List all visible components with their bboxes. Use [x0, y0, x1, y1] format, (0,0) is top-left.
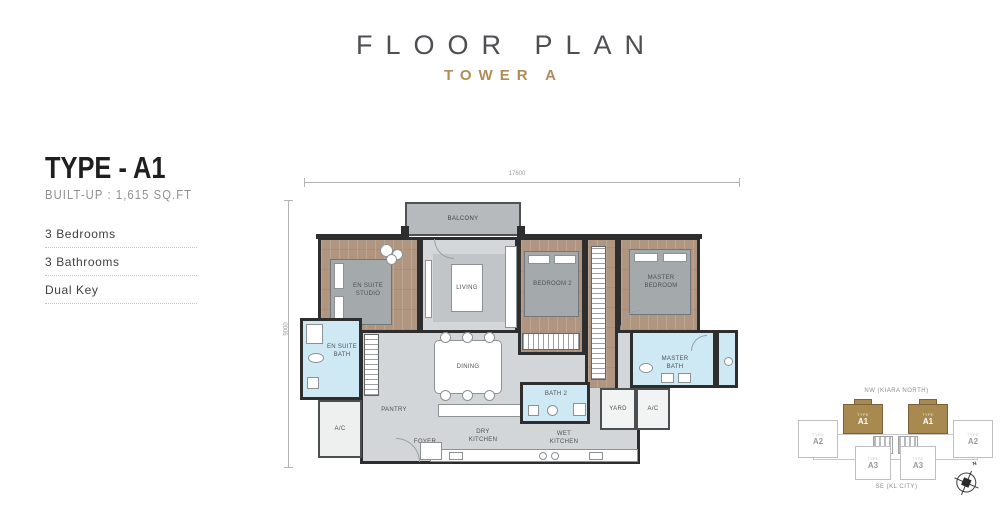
- sink: [307, 377, 319, 389]
- bed-bedroom-2: BEDROOM 2: [524, 251, 579, 317]
- room-label-ac: A/C: [648, 405, 659, 413]
- bed-en-suite-studio: EN SUITE STUDIO: [330, 259, 392, 325]
- sink: [449, 452, 463, 460]
- keyplan-unit-a3: TYPE A3: [855, 446, 891, 480]
- keyplan: NW (KIARA NORTH) TYPE A1 TYPE A1 TYPE A2…: [793, 388, 1000, 506]
- room-label-bath-2: BATH 2: [541, 390, 571, 398]
- keyplan-unit-label: A2: [968, 437, 978, 446]
- room-label-dining: DINING: [457, 363, 480, 371]
- wardrobe: [364, 334, 379, 396]
- wardrobe-column: [591, 246, 606, 380]
- dimension-tick: [284, 200, 293, 201]
- plant-icon: [386, 254, 397, 265]
- toilet: [308, 353, 324, 363]
- washer: [573, 403, 586, 416]
- tv-console: [425, 260, 432, 318]
- cooktop-burner: [539, 452, 547, 460]
- sink: [589, 452, 603, 460]
- room-balcony: BALCONY: [405, 202, 521, 236]
- room-en-suite-bath: EN SUITE BATH: [300, 318, 362, 400]
- room-bath-2: BATH 2: [520, 382, 590, 424]
- coffee-table: LIVING: [451, 264, 483, 312]
- chair: [440, 390, 451, 401]
- keyplan-unit-a1: TYPE A1: [908, 404, 948, 434]
- page-title: FLOOR PLAN: [0, 30, 1000, 61]
- room-living: LIVING: [420, 237, 518, 333]
- compass-north-letter: N: [972, 461, 978, 468]
- room-ac-ledge-left: A/C: [318, 400, 362, 458]
- feature-item: 3 Bedrooms: [45, 220, 197, 248]
- room-label-balcony: BALCONY: [448, 215, 479, 223]
- room-label-master-bedroom: MASTER BEDROOM: [641, 274, 681, 290]
- room-label-living: LIVING: [456, 284, 477, 292]
- chair: [440, 332, 451, 343]
- room-label-en-suite-studio: EN SUITE STUDIO: [345, 282, 391, 298]
- room-label-yard: YARD: [609, 405, 626, 413]
- built-up-text: BUILT-UP : 1,615 SQ.FT: [45, 188, 189, 202]
- keyplan-unit-label: A1: [923, 417, 933, 426]
- dimension-tick: [284, 467, 293, 468]
- keyplan-unit-a3: TYPE A3: [900, 446, 936, 480]
- shoe-cabinet: [420, 442, 442, 460]
- keyplan-unit-a1: TYPE A1: [843, 404, 883, 434]
- room-label-master-bath: MASTER BATH: [657, 355, 693, 371]
- cooktop-burner: [551, 452, 559, 460]
- keyplan-unit-label: A2: [813, 437, 823, 446]
- floor-plan: 17600 9000 BALCONY EN SUITE STUDIO: [288, 166, 746, 476]
- pillow: [663, 253, 687, 262]
- chair: [462, 332, 473, 343]
- shower-drain: [724, 357, 733, 366]
- keyplan-north-label: NW (KIARA NORTH): [793, 388, 1000, 394]
- wardrobe: [522, 333, 580, 350]
- room-label-bedroom-2: BEDROOM 2: [529, 280, 576, 288]
- toilet: [639, 363, 653, 373]
- dimension-width-label: 17600: [509, 171, 526, 177]
- room-label-ac: A/C: [335, 425, 346, 433]
- pillow: [528, 255, 550, 264]
- sink: [661, 373, 674, 383]
- header: FLOOR PLAN TOWER A: [0, 30, 1000, 84]
- chair: [462, 390, 473, 401]
- dimension-tick: [304, 178, 305, 187]
- dimension-depth-label: 9000: [284, 322, 290, 335]
- room-shower: [716, 330, 738, 388]
- room-label-wet-kitchen: WET KITCHEN: [544, 430, 584, 446]
- dimension-tick: [739, 178, 740, 187]
- unit-info: TYPE - A1 BUILT-UP : 1,615 SQ.FT 3 Bedro…: [45, 150, 205, 304]
- dimension-line-width: [304, 182, 740, 183]
- chair: [484, 390, 495, 401]
- pillow: [634, 253, 658, 262]
- pillow: [334, 263, 344, 289]
- sofa: [505, 246, 517, 328]
- keyplan-unit-label: A1: [858, 417, 868, 426]
- dining-table: DINING: [434, 340, 502, 394]
- sink: [528, 405, 539, 416]
- room-yard: YARD: [600, 388, 636, 430]
- page: FLOOR PLAN TOWER A TYPE - A1 BUILT-UP : …: [0, 0, 1000, 506]
- room-ac-ledge-right: A/C: [636, 388, 670, 430]
- chair: [484, 332, 495, 343]
- feature-item: 3 Bathrooms: [45, 248, 197, 276]
- kitchen-counter: [430, 449, 638, 462]
- keyplan-unit-a2: TYPE A2: [798, 420, 838, 458]
- feature-list: 3 Bedrooms 3 Bathrooms Dual Key: [45, 220, 205, 304]
- keyplan-unit-label: A3: [868, 461, 878, 470]
- keyplan-unit-label: A3: [913, 461, 923, 470]
- door-arc: [691, 335, 707, 351]
- room-label-pantry: PANTRY: [376, 406, 412, 414]
- bed-master: MASTER BEDROOM: [629, 249, 691, 315]
- compass-icon: N: [950, 461, 989, 500]
- page-subtitle: TOWER A: [0, 67, 1000, 84]
- toilet: [547, 405, 558, 416]
- keyplan-unit-a2: TYPE A2: [953, 420, 993, 458]
- feature-item: Dual Key: [45, 276, 197, 304]
- sink: [678, 373, 691, 383]
- unit-type-title: TYPE - A1: [45, 150, 176, 186]
- room-master-bath: MASTER BATH: [630, 330, 716, 388]
- shower: [306, 324, 323, 344]
- pillow: [554, 255, 576, 264]
- room-label-en-suite-bath: EN SUITE BATH: [325, 343, 359, 359]
- room-label-dry-kitchen: DRY KITCHEN: [464, 428, 502, 444]
